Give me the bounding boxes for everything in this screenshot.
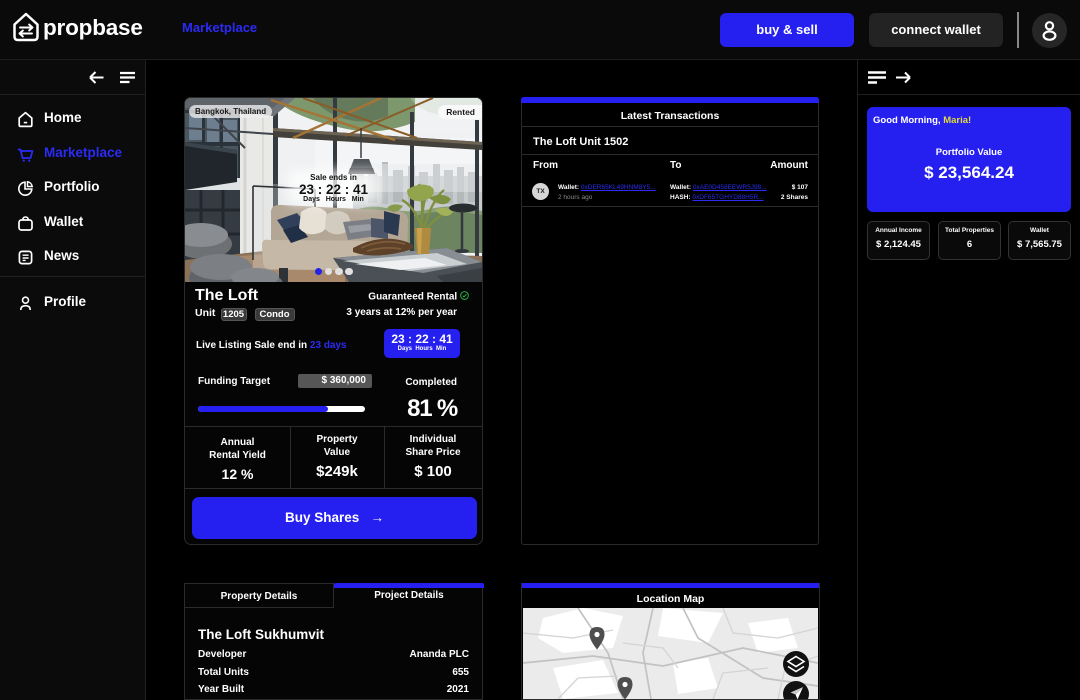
- svg-text:propbase: propbase: [43, 15, 143, 40]
